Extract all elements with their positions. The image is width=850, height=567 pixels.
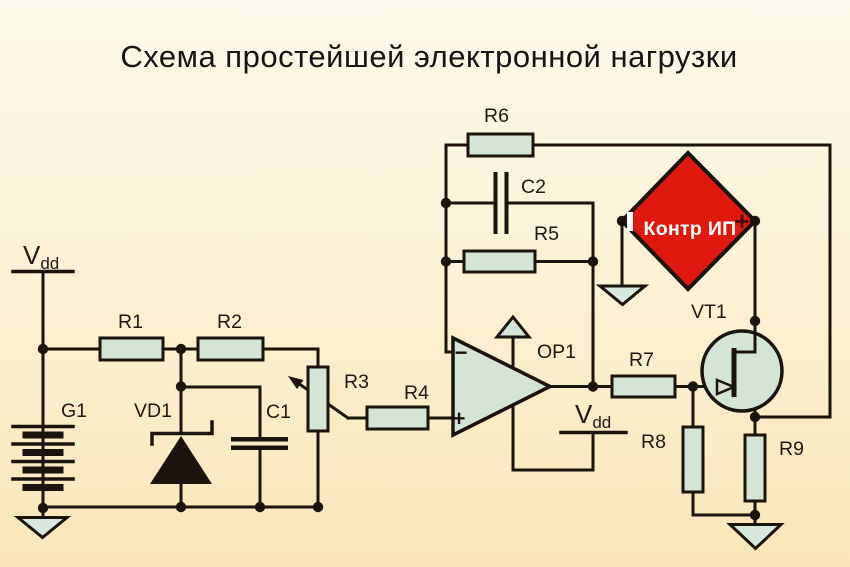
junction-dot xyxy=(750,412,760,422)
meter-plus-mark: + xyxy=(734,206,749,236)
ground-symbol xyxy=(18,518,67,538)
junction-dot xyxy=(441,256,451,266)
wire-r2-r3 xyxy=(263,349,318,368)
meter-kontr-ip: + Контр ИП xyxy=(622,153,755,289)
label-c2: C2 xyxy=(521,176,546,198)
resistor-r7-body xyxy=(612,376,675,397)
junction-dot xyxy=(313,502,323,512)
resistor-r2-body xyxy=(198,338,263,360)
label-g1: G1 xyxy=(61,400,87,422)
resistor-r5-body xyxy=(464,251,535,272)
junction-dot xyxy=(255,502,265,512)
capacitor-plate xyxy=(231,446,288,451)
label-r4: R4 xyxy=(404,382,429,404)
label-r9: R9 xyxy=(779,438,804,460)
label-vdd-left: Vdd xyxy=(23,240,59,273)
junction-dot xyxy=(176,502,186,512)
label-op1: OP1 xyxy=(537,341,576,363)
meter-minus-mark xyxy=(627,212,633,231)
schematic-canvas: − + + Контр ИП Схема простейш xyxy=(0,0,850,567)
label-r8: R8 xyxy=(641,431,666,453)
opamp-power-arrowhead xyxy=(497,317,529,337)
junction-dot xyxy=(688,381,698,391)
junction-dot xyxy=(176,381,186,391)
label-vt1: VT1 xyxy=(691,301,727,323)
junction-dot xyxy=(750,316,760,326)
label-r6: R6 xyxy=(484,105,509,127)
zener-anode-triangle xyxy=(150,436,212,484)
junction-dot xyxy=(750,510,760,520)
meter-label: Контр ИП xyxy=(644,218,737,240)
junction-dot xyxy=(441,198,451,208)
label-c1: C1 xyxy=(266,401,291,423)
ground-symbol xyxy=(600,286,645,305)
label-r2: R2 xyxy=(217,311,242,333)
label-r5: R5 xyxy=(534,223,559,245)
junction-dot xyxy=(588,381,598,391)
opamp-noninverting-mark: + xyxy=(453,406,466,431)
ground-symbol xyxy=(730,525,781,549)
mosfet-body xyxy=(702,331,782,411)
resistor-r9-body xyxy=(745,435,765,501)
label-vd1: VD1 xyxy=(134,400,172,422)
resistor-r4-body xyxy=(367,407,428,429)
capacitor-c2 xyxy=(494,172,509,234)
opamp-triangle xyxy=(453,338,550,435)
resistor-r6-body xyxy=(468,134,533,156)
opamp-op1: − + xyxy=(453,317,550,435)
junction-dot xyxy=(38,503,48,513)
capacitor-c1 xyxy=(231,437,288,450)
opamp-inverting-mark: − xyxy=(455,340,468,365)
junction-dot xyxy=(617,216,627,226)
mosfet-vt1 xyxy=(702,331,782,411)
label-vdd-mid: Vdd xyxy=(575,399,611,432)
wire-inv-rail-left xyxy=(446,145,468,352)
label-r1: R1 xyxy=(118,311,143,333)
page-title: Схема простейшей электронной нагрузки xyxy=(120,39,737,74)
wire-c1-branch xyxy=(181,387,260,438)
resistor-r1-body xyxy=(100,338,163,360)
capacitor-plate xyxy=(494,172,498,234)
schematic-page: − + + Контр ИП Схема простейш xyxy=(0,0,850,567)
junction-dot xyxy=(176,344,186,354)
capacitor-plate xyxy=(505,172,509,234)
resistor-r8-body xyxy=(683,427,703,492)
junction-dot xyxy=(588,256,598,266)
junction-dot xyxy=(38,344,48,354)
label-r3: R3 xyxy=(344,371,369,393)
label-r7: R7 xyxy=(629,349,654,371)
junction-dot xyxy=(750,216,760,226)
capacitor-plate xyxy=(231,437,288,442)
resistor-r3-body xyxy=(308,367,328,431)
